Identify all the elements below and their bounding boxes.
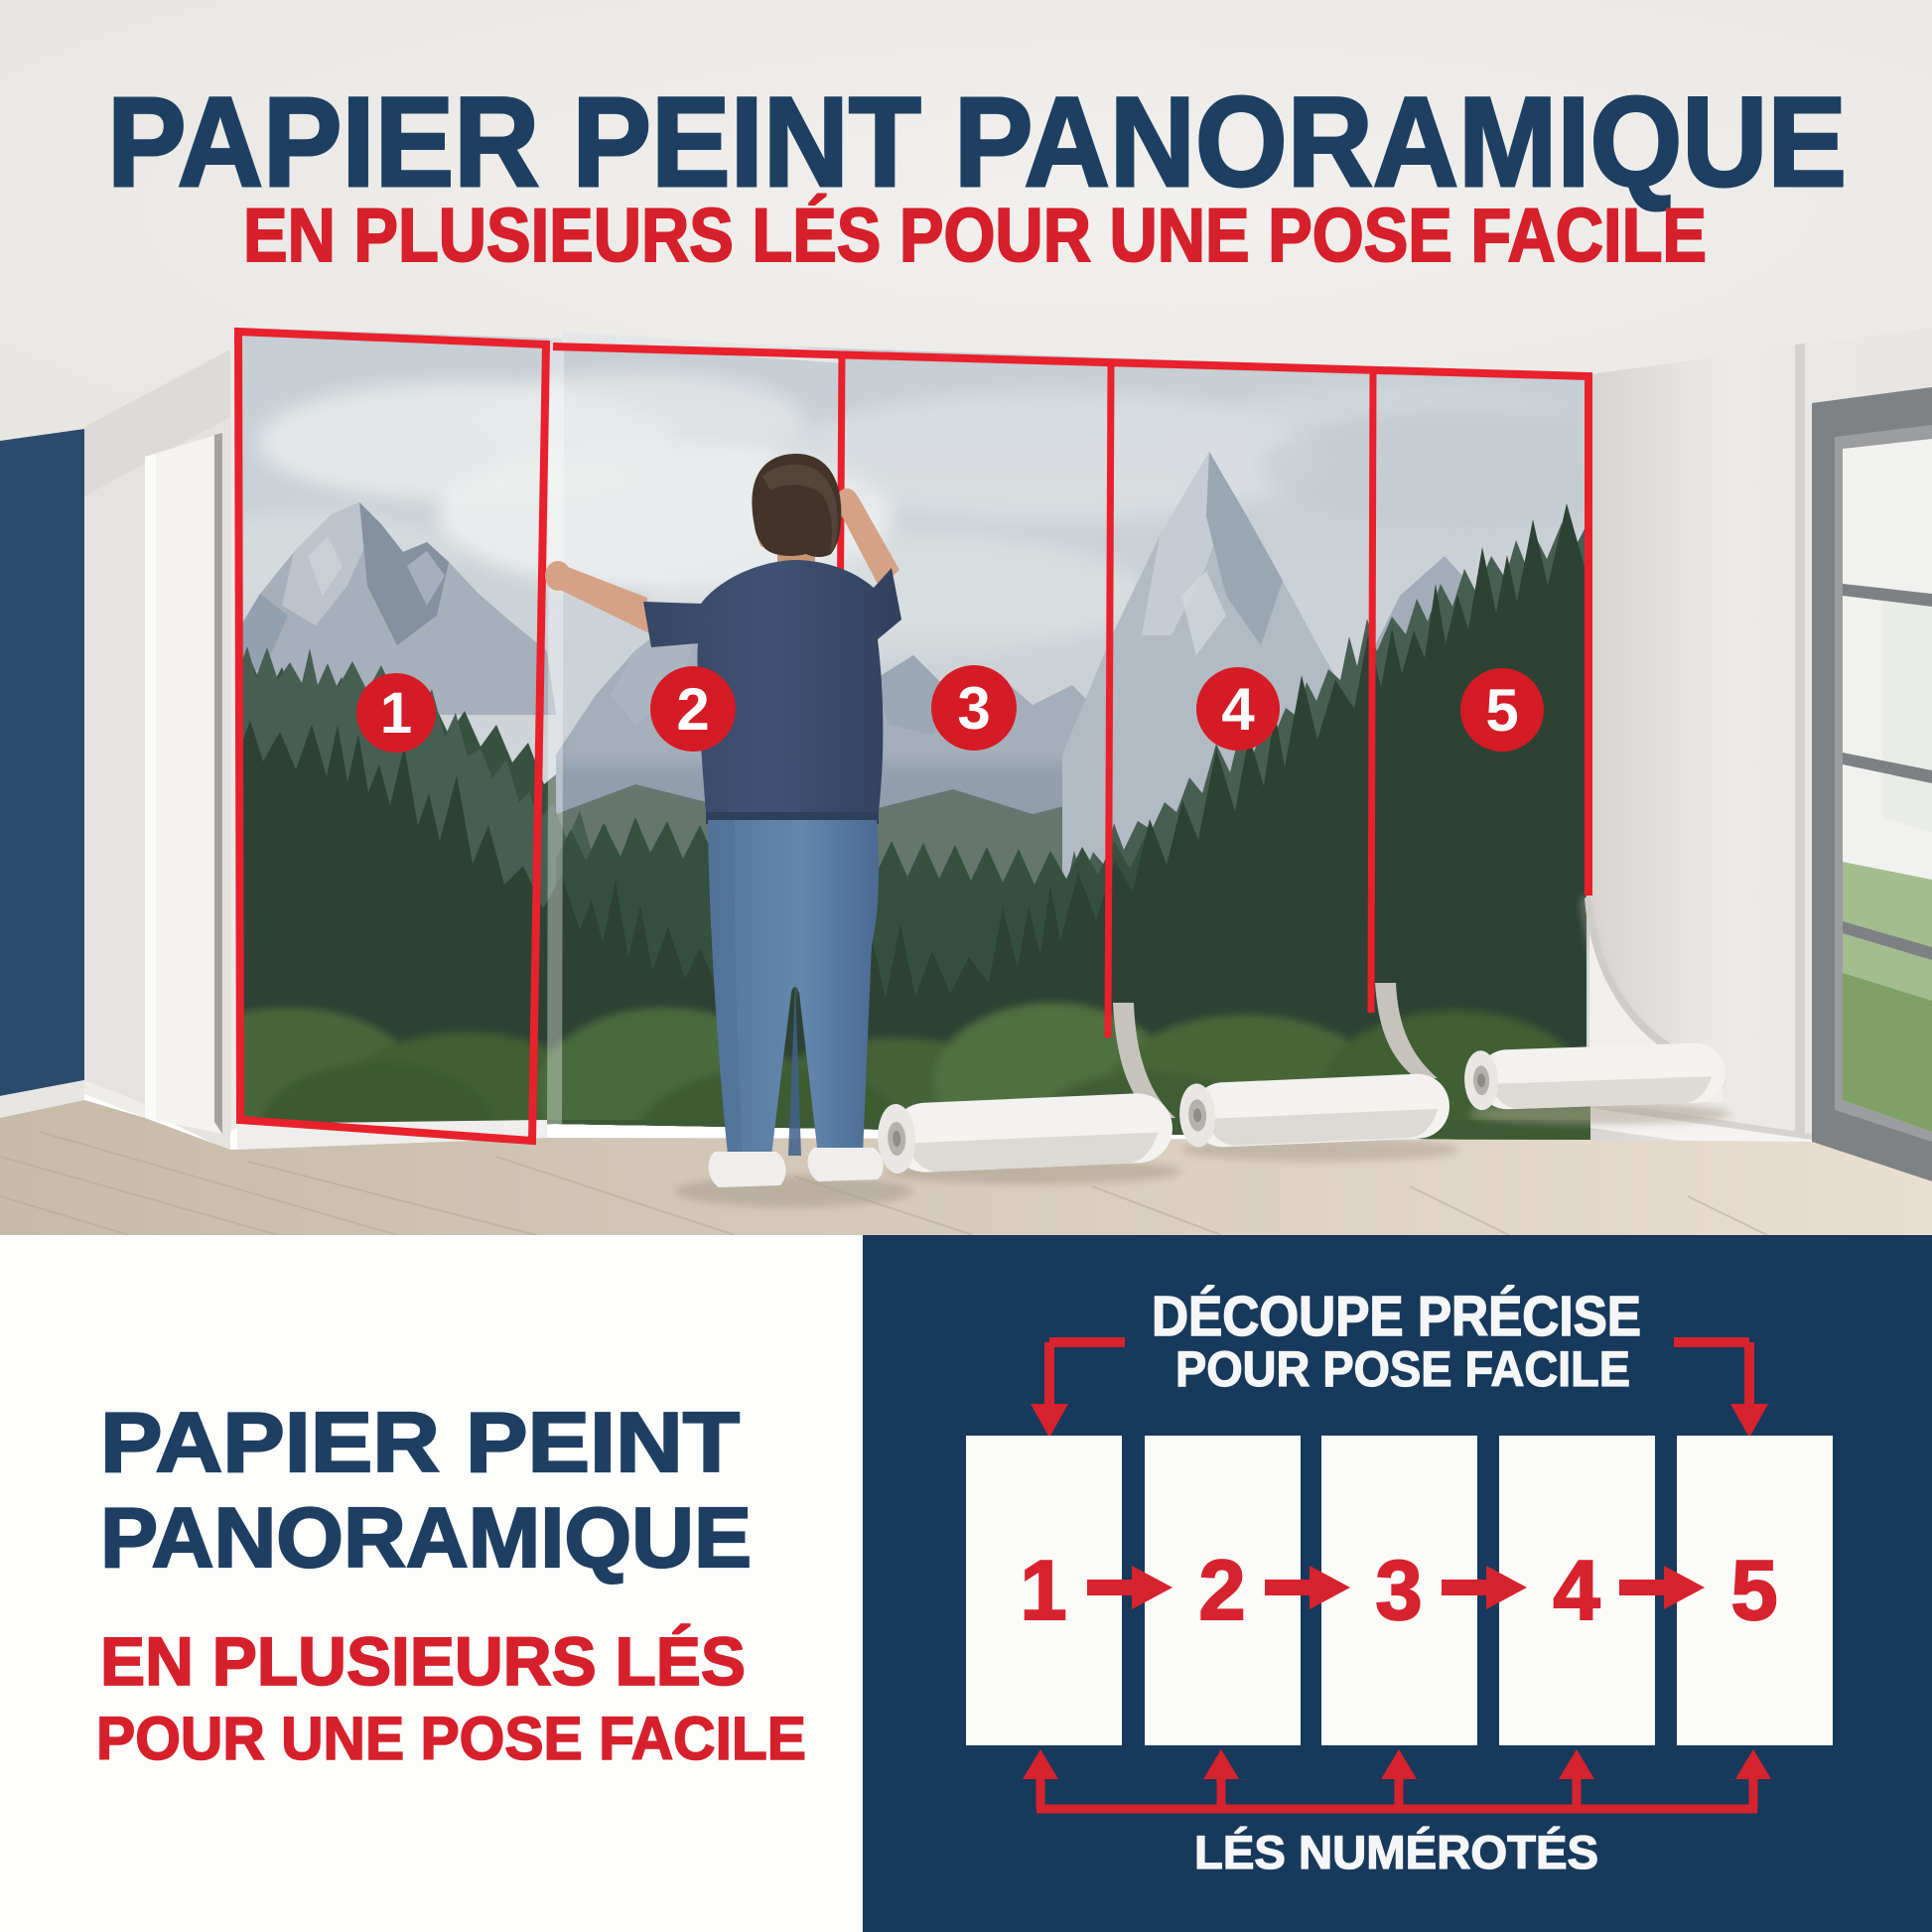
svg-text:1: 1: [380, 681, 412, 746]
svg-text:PAPIER PEINT PANORAMIQUE: PAPIER PEINT PANORAMIQUE: [107, 71, 1847, 213]
svg-text:5: 5: [1730, 1544, 1777, 1638]
svg-text:EN PLUSIEURS LÉS: EN PLUSIEURS LÉS: [100, 1623, 746, 1700]
svg-text:POUR UNE POSE FACILE: POUR UNE POSE FACILE: [96, 1705, 806, 1772]
svg-text:4: 4: [1553, 1544, 1599, 1638]
svg-text:4: 4: [1221, 676, 1255, 743]
svg-text:PANORAMIQUE: PANORAMIQUE: [100, 1491, 752, 1586]
svg-text:2: 2: [1198, 1544, 1245, 1638]
svg-text:2: 2: [676, 676, 709, 743]
svg-text:5: 5: [1485, 677, 1518, 744]
svg-text:LÉS NUMÉROTÉS: LÉS NUMÉROTÉS: [1194, 1826, 1598, 1878]
svg-text:DÉCOUPE PRÉCISE: DÉCOUPE PRÉCISE: [1152, 1285, 1641, 1348]
svg-text:3: 3: [1375, 1544, 1422, 1638]
svg-text:1: 1: [1020, 1544, 1066, 1638]
svg-text:POUR POSE FACILE: POUR POSE FACILE: [1175, 1341, 1630, 1397]
svg-text:PAPIER PEINT: PAPIER PEINT: [100, 1396, 740, 1490]
svg-text:EN PLUSIEURS LÉS POUR UNE POSE: EN PLUSIEURS LÉS POUR UNE POSE FACILE: [243, 194, 1707, 278]
svg-text:3: 3: [957, 675, 990, 742]
